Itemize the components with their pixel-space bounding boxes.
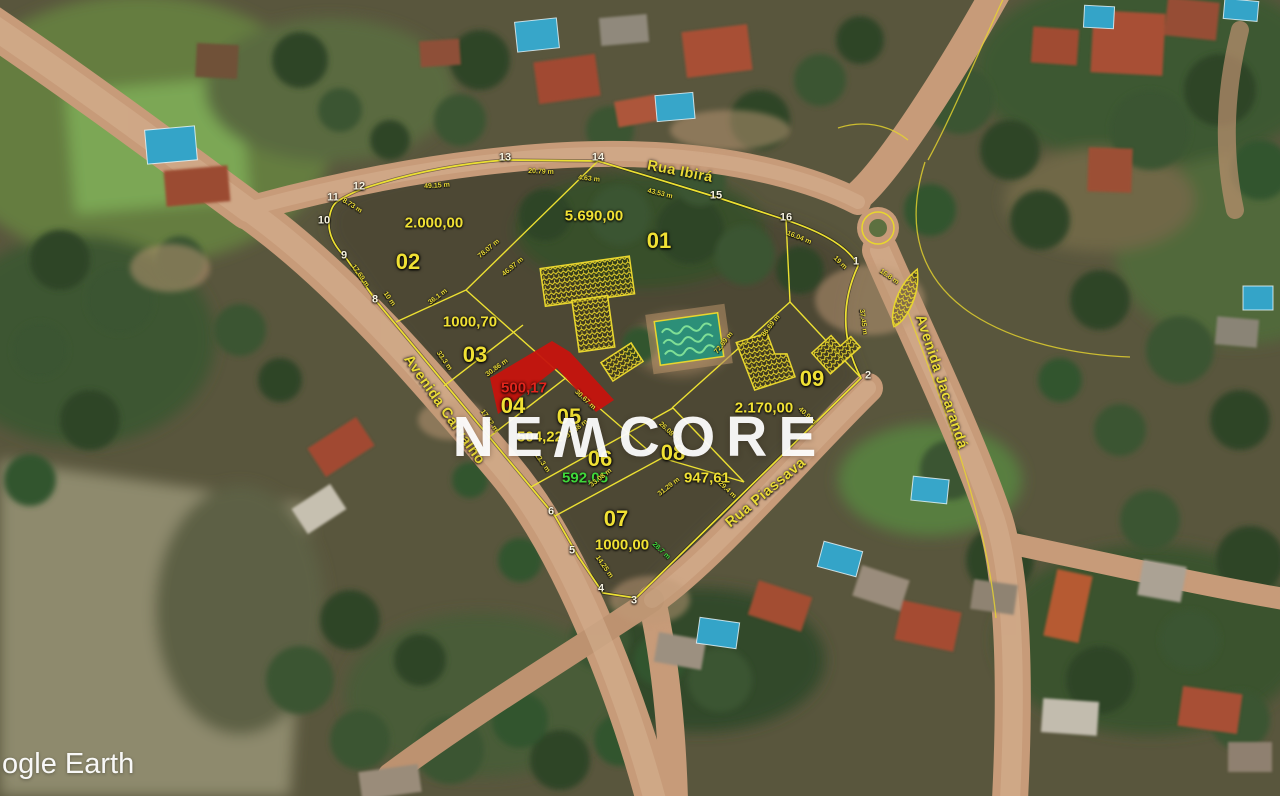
lot-number: 09	[800, 368, 824, 390]
measurement-label: 37.45 m	[858, 309, 869, 335]
lot-area: 1000,00	[595, 538, 649, 553]
lot-area: 1000,70	[443, 315, 497, 330]
lot-number: 07	[604, 508, 628, 530]
measurement-label: 28.7 m	[651, 541, 672, 561]
vertex-number: 16	[780, 213, 792, 224]
vertex-number: 4	[598, 584, 604, 595]
vertex-number: 11	[327, 193, 339, 204]
watermark-suffix: CORE	[619, 405, 828, 469]
vertex-number: 14	[592, 153, 604, 164]
measurement-label: 30.86 m	[485, 358, 510, 379]
vertex-number: 8	[372, 295, 378, 306]
vertex-number: 10	[318, 216, 330, 227]
street-label: Avenida Jacarandá	[912, 313, 969, 451]
measurement-label: 20.79 m	[528, 168, 554, 176]
watermark-flipped-w: W	[554, 404, 619, 470]
vertex-number: 5	[569, 546, 575, 557]
vertex-number: 13	[499, 153, 511, 164]
lot-area: 500,17	[501, 381, 547, 396]
measurement-label: 4.63 m	[578, 174, 600, 183]
measurement-label: 43.53 m	[647, 187, 674, 200]
vertex-number: 15	[710, 191, 722, 202]
lot-number: 02	[396, 251, 420, 273]
measurement-label: 16.04 m	[786, 230, 812, 246]
measurement-label: 10 m	[382, 290, 397, 307]
lot-area: 5.690,00	[565, 209, 623, 224]
vertex-number: 2	[865, 371, 871, 382]
lot-number: 01	[647, 230, 671, 252]
map-annotations-layer: Rua IbiráAvenida CarvalhoAvenida Jacaran…	[0, 0, 1280, 796]
lot-area: 2.000,00	[405, 216, 463, 231]
vertex-number: 3	[631, 596, 637, 607]
newcore-watermark: NEWCORE	[453, 404, 828, 470]
vertex-number: 9	[341, 251, 347, 262]
measurement-label: 17.69 m	[350, 263, 370, 288]
measurement-label: 86.69 m	[760, 314, 781, 339]
vertex-number: 12	[353, 182, 365, 193]
watermark-prefix: NE	[453, 405, 554, 469]
lot-number: 03	[463, 344, 487, 366]
satellite-map-canvas: Rua IbiráAvenida CarvalhoAvenida Jacaran…	[0, 0, 1280, 796]
measurement-label: 36.1 m	[427, 288, 449, 307]
vertex-number: 1	[853, 257, 859, 268]
measurement-label: 72.69 m	[713, 331, 734, 356]
measurement-label: 19 m	[832, 255, 848, 271]
street-label: Rua Ibirá	[646, 159, 714, 186]
measurement-label: 78.07 m	[477, 238, 501, 260]
measurement-label: 33.3 m	[435, 350, 453, 372]
vertex-number: 6	[548, 507, 554, 518]
measurement-label: 49.15 m	[424, 182, 450, 191]
measurement-label: 8.73 m	[341, 197, 363, 214]
google-earth-logo: ogle Earth	[2, 748, 134, 781]
measurement-label: 31.29 m	[657, 476, 682, 497]
measurement-label: 14.25 m	[594, 554, 614, 579]
measurement-label: 16.8 m	[878, 268, 900, 286]
measurement-label: 46.97 m	[501, 256, 525, 278]
